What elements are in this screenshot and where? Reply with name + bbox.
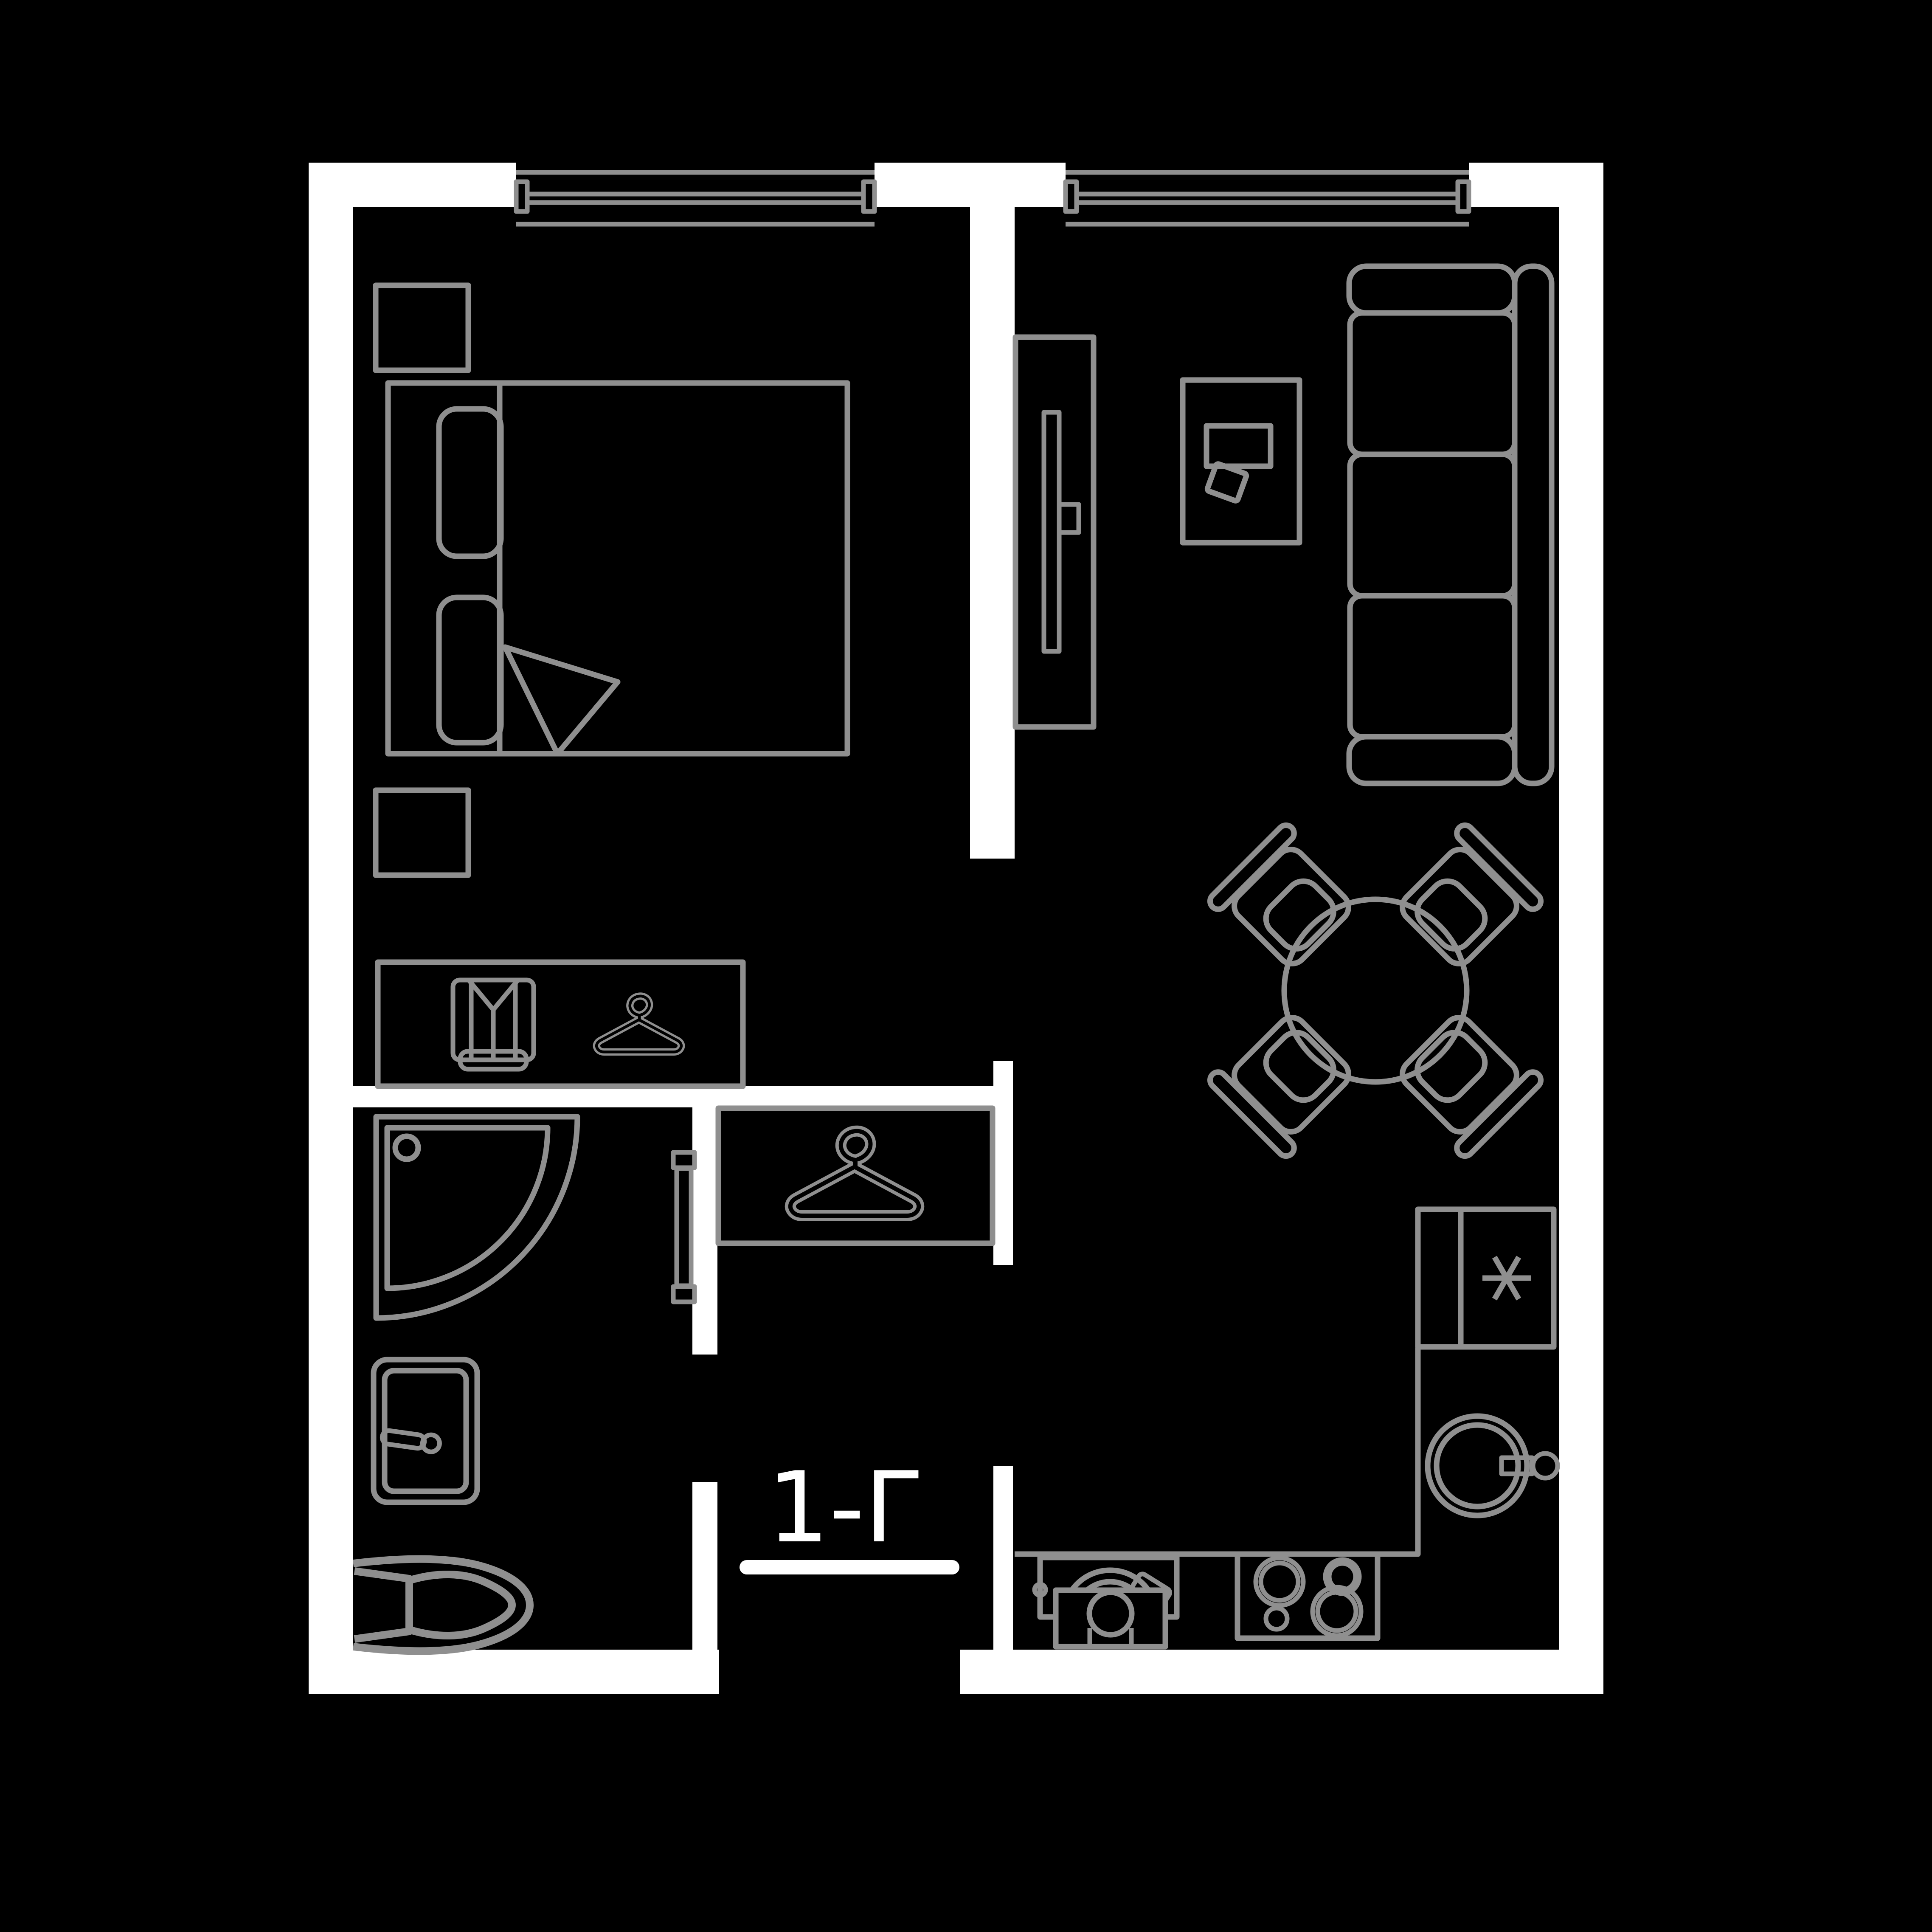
sofa-armrest-top	[1349, 266, 1515, 313]
tv-mount	[1059, 504, 1079, 532]
dining-table	[1284, 899, 1467, 1082]
kitchen-counter-edge	[1015, 1348, 1418, 1554]
floor-plan-svg: 1-Г	[0, 0, 1932, 1932]
sofa-backrest	[1515, 266, 1552, 783]
dining-chair	[1388, 1003, 1544, 1160]
shower-drain	[395, 1136, 418, 1159]
bedroom-window	[516, 172, 875, 224]
dining-chair	[1388, 822, 1544, 978]
wall-exterior-right	[1559, 163, 1603, 1694]
clothes-hanger-icon	[596, 996, 681, 1052]
living-room-window	[1066, 172, 1469, 224]
shower-tray	[387, 1128, 548, 1288]
bed-blanket-fold	[505, 647, 618, 754]
washing-machine	[1035, 1557, 1177, 1647]
sink-rim	[1428, 1416, 1527, 1515]
tv-cabinet	[1015, 337, 1094, 727]
living-room	[1015, 266, 1552, 1159]
door-hinge	[673, 1152, 695, 1168]
wall-hallway-lower	[993, 1466, 1013, 1650]
wall-bedroom-hall	[353, 1086, 994, 1107]
wall-exterior-top-middle	[875, 163, 1066, 207]
faucet-knob	[422, 1434, 441, 1453]
unit-label-group: 1-Г	[740, 1451, 959, 1574]
faucet-knob	[1533, 1453, 1558, 1478]
sofa-armrest-bottom	[1349, 737, 1515, 783]
sink-faucet	[381, 1428, 441, 1453]
unit-label-underline	[740, 1560, 959, 1574]
wall-bedroom-living-partition	[970, 207, 1015, 859]
corner-shower	[376, 1117, 577, 1318]
bathroom-sink	[374, 1360, 477, 1502]
sink-bowl	[1437, 1425, 1518, 1507]
door-panel	[677, 1169, 691, 1286]
faucet-body	[381, 1430, 425, 1449]
burner-large-inner	[1261, 1563, 1298, 1600]
double-bed	[388, 383, 847, 754]
dining-chair	[1207, 822, 1363, 978]
kitchen	[1015, 1209, 1558, 1647]
bedroom	[376, 285, 847, 1086]
hanger-triangle-core	[790, 1167, 919, 1216]
unit-label: 1-Г	[767, 1451, 924, 1565]
bathroom	[353, 1117, 695, 1651]
bed-pillow	[439, 597, 501, 743]
desk-chair-seat	[1207, 463, 1247, 501]
tv-unit	[1015, 337, 1094, 727]
window-jamb	[1458, 182, 1469, 211]
bed-outline	[388, 383, 847, 754]
toilet-tank	[354, 1571, 409, 1639]
walls	[309, 163, 1603, 1694]
toilet	[353, 1559, 530, 1651]
bed-pillow	[439, 409, 501, 556]
desk-area	[1183, 380, 1299, 543]
floor-plan-page: 1-Г	[0, 0, 1932, 1932]
wall-exterior-bottom-left	[309, 1650, 719, 1694]
wall-bathroom-upper	[692, 1107, 717, 1355]
bathroom-door-leaf	[673, 1152, 695, 1302]
chair-back	[1454, 1069, 1544, 1160]
wall-bathroom-lower	[692, 1482, 717, 1650]
desk-chair	[1207, 463, 1247, 501]
kitchen-sink	[1428, 1416, 1558, 1515]
washer-drum-housing	[1056, 1590, 1165, 1647]
door-hinge	[673, 1287, 695, 1302]
window-jamb	[1066, 182, 1077, 211]
window-jamb	[863, 182, 875, 211]
hall-closet	[718, 1108, 993, 1243]
burner-large-inner	[1318, 1592, 1356, 1631]
clothes-hanger-icon	[790, 1131, 919, 1216]
folded-shirt-icon	[453, 980, 534, 1069]
wall-exterior-top-left	[309, 163, 516, 207]
toilet-bowl	[409, 1574, 512, 1636]
sofa-cushion	[1350, 454, 1515, 596]
chair-back	[1454, 822, 1544, 913]
hanger-triangle-core	[596, 1020, 681, 1052]
sofa-cushion	[1350, 596, 1515, 737]
fridge	[1418, 1209, 1554, 1347]
wall-exterior-bottom-right	[960, 1650, 1603, 1694]
sofa-cushion	[1350, 313, 1515, 454]
chair-back	[1207, 1069, 1298, 1160]
wall-exterior-left	[309, 163, 353, 1694]
asterisk-freezer-icon	[1482, 1257, 1531, 1299]
sofa	[1349, 266, 1552, 783]
shirt-collar	[469, 980, 518, 1010]
monitor	[1206, 426, 1271, 466]
chair-back	[1207, 822, 1298, 913]
nightstand-top	[376, 285, 468, 370]
desk	[1183, 380, 1299, 543]
window-jamb	[516, 182, 527, 211]
wall-hallway-upper	[993, 1061, 1013, 1265]
dining-chair	[1207, 1003, 1363, 1160]
nightstand-bottom	[376, 790, 468, 875]
cooktop	[1237, 1554, 1378, 1638]
dining-set	[1207, 822, 1544, 1160]
wardrobe-outline	[378, 962, 743, 1086]
burner-small	[1266, 1608, 1287, 1629]
wardrobe	[378, 962, 743, 1086]
